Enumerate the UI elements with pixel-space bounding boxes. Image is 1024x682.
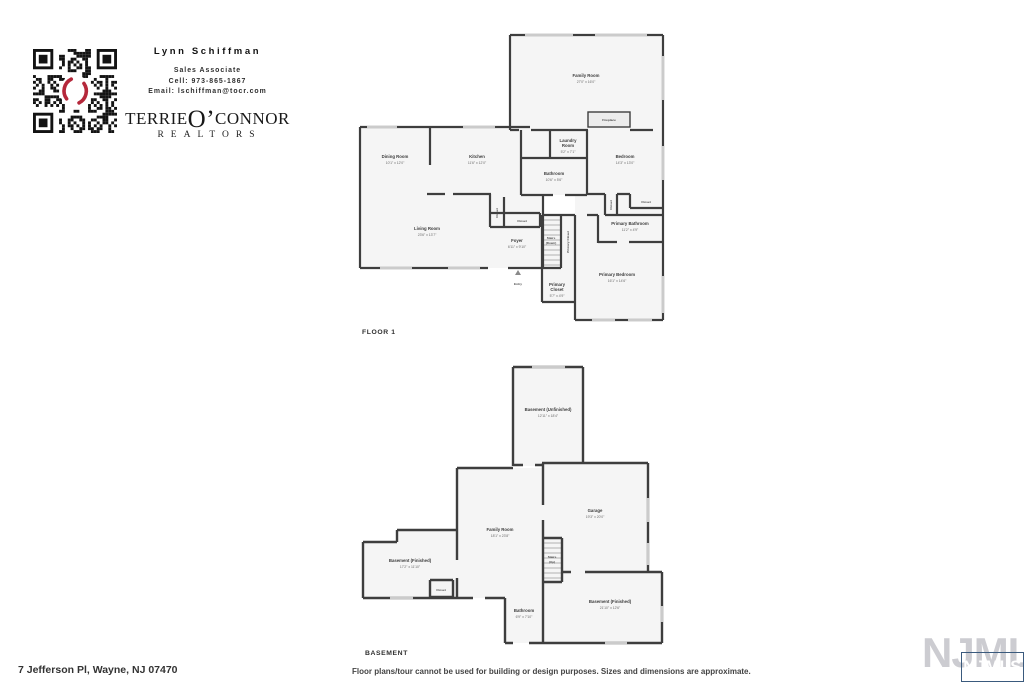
- room-dims-living-room: 23'6" x 13'7": [418, 233, 437, 237]
- floorplan-flyer: Lynn Schiffman Sales Associate Cell: 973…: [0, 0, 1024, 682]
- room-dims-laundry: 5'2" x 7'1": [561, 150, 577, 154]
- room-label-living-room: Living Room: [414, 226, 440, 231]
- basement-plan: Basement (Unfinished) 12'11" x 18'4" Gar…: [355, 360, 685, 660]
- floor1-title: FLOOR 1: [362, 329, 396, 336]
- room-label-primary-closet-2: Closet: [550, 287, 564, 292]
- room-label-closet-bedroom-a: Closet: [609, 200, 613, 209]
- room-label-basement-unfinished: Basement (Unfinished): [525, 407, 572, 412]
- room-label-stairs-down-2: (Down): [546, 241, 556, 245]
- agent-email: Email: lschiffman@tocr.com: [120, 87, 295, 98]
- room-dims-family-room: 27'0" x 16'0": [577, 80, 596, 84]
- qr-code: [33, 49, 117, 133]
- room-label-garage: Garage: [588, 508, 603, 513]
- agent-name: Lynn Schiffman: [120, 46, 295, 57]
- brand-o-icon: O’: [188, 106, 215, 133]
- room-label-fireplace: Fireplace: [602, 118, 616, 122]
- floor1-room-fills: [360, 35, 663, 320]
- tocr-swirl-icon: [59, 75, 90, 106]
- agent-card: Lynn Schiffman Sales Associate Cell: 973…: [120, 46, 295, 140]
- room-label-primary-bathroom: Primary Bathroom: [611, 221, 649, 226]
- room-label-closet-kitchen: Closet: [495, 208, 499, 217]
- room-label-stairs-up-1: Stairs: [548, 555, 557, 559]
- room-label-basement-family-room: Family Room: [487, 527, 514, 532]
- room-label-primary-closet-hall: Primary Closet: [566, 231, 570, 253]
- brokerage-realtors: REALTORS: [124, 130, 295, 140]
- room-dims-primary-bathroom: 11'2" x 4'9": [622, 228, 639, 232]
- room-label-primary-bedroom: Primary Bedroom: [599, 272, 635, 277]
- room-dims-primary-bedroom: 16'1" x 14'6": [608, 279, 627, 283]
- room-label-family-room: Family Room: [573, 73, 600, 78]
- room-label-bedroom: Bedroom: [616, 154, 635, 159]
- brand-terrie: TERRIE: [125, 109, 188, 128]
- room-label-entry: Entry: [514, 282, 522, 286]
- room-dims-basement-finished-left: 17'2" x 11'10": [400, 565, 421, 569]
- room-label-bathroom: Bathroom: [544, 171, 564, 176]
- room-dims-foyer: 6'11" x 9'10": [508, 245, 527, 249]
- room-dims-bathroom: 10'6" x 5'6": [546, 178, 564, 182]
- brand-connor: CONNOR: [215, 109, 290, 128]
- floor1-plan: Family Room 27'0" x 16'0" Fireplace Dini…: [355, 28, 670, 343]
- entry-arrow-icon: [515, 270, 521, 275]
- room-label-basement-bathroom: Bathroom: [514, 608, 534, 613]
- room-dims-basement-finished-right: 21'10" x 12'6": [600, 606, 621, 610]
- room-dims-dining-room: 10'1" x 12'0": [386, 161, 405, 165]
- agent-cell: Cell: 973-865-1867: [120, 77, 295, 88]
- room-label-basement-closet: Closet: [436, 588, 445, 592]
- room-label-kitchen: Kitchen: [469, 154, 485, 159]
- room-dims-kitchen: 11'6" x 12'0": [468, 161, 487, 165]
- room-dims-garage: 19'3" x 20'0": [586, 515, 605, 519]
- room-dims-basement-family-room: 18'1" x 23'8": [491, 534, 510, 538]
- room-label-basement-finished-right: Basement (Finished): [589, 599, 632, 604]
- room-dims-primary-closet: 5'7" x 4'9": [550, 294, 566, 298]
- room-dims-basement-unfinished: 12'11" x 18'4": [538, 414, 559, 418]
- room-label-closet-bedroom-b: Closet: [641, 200, 650, 204]
- njmls-logo-badge: NJMLS: [961, 652, 1024, 682]
- room-label-closet-foyer: Closet: [517, 219, 526, 223]
- disclaimer-text: Floor plans/tour cannot be used for buil…: [352, 667, 751, 676]
- room-dims-bedroom: 14'3" x 13'0": [616, 161, 635, 165]
- room-label-laundry-2: Room: [562, 143, 574, 148]
- room-label-stairs-down-1: Stairs: [547, 236, 556, 240]
- room-label-dining-room: Dining Room: [382, 154, 409, 159]
- room-label-foyer: Foyer: [511, 238, 523, 243]
- property-address: 7 Jefferson Pl, Wayne, NJ 07470: [18, 664, 178, 676]
- brokerage-logo: TERRIEO’CONNOR: [120, 109, 295, 129]
- basement-title: BASEMENT: [365, 650, 408, 657]
- room-label-basement-finished-left: Basement (Finished): [389, 558, 432, 563]
- room-dims-basement-bathroom: 6'9" x 7'10": [516, 615, 534, 619]
- agent-title: Sales Associate: [120, 66, 295, 77]
- room-label-stairs-up-2: (Up): [549, 560, 555, 564]
